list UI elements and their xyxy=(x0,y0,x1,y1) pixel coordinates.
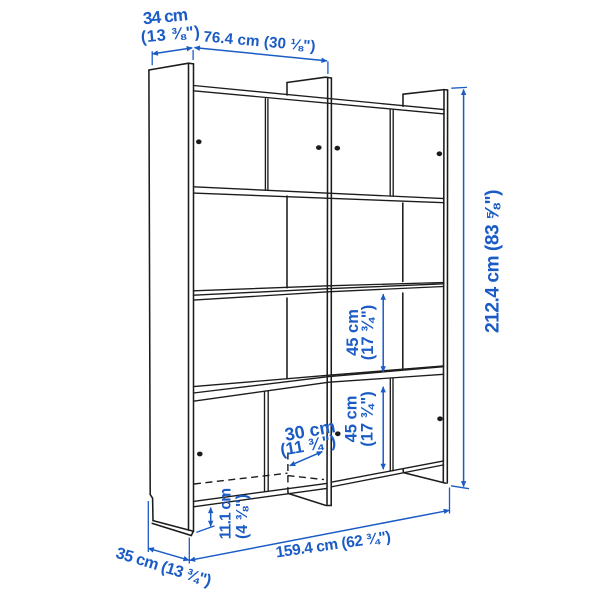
svg-text:(17 ¾"): (17 ¾") xyxy=(358,391,376,447)
svg-text:76.4 cm (30 ⅛"): 76.4 cm (30 ⅛") xyxy=(203,28,317,55)
svg-text:(17 ¾"): (17 ¾") xyxy=(359,305,377,361)
svg-text:35 cm (13 ¾"): 35 cm (13 ¾") xyxy=(114,544,213,590)
svg-text:11.1 cm: 11.1 cm xyxy=(218,489,235,539)
svg-text:(4 ⅜"): (4 ⅜") xyxy=(234,494,251,539)
svg-text:159.4 cm (62 ¾"): 159.4 cm (62 ¾") xyxy=(275,529,392,562)
svg-text:212.4 cm (83 ⅝"): 212.4 cm (83 ⅝") xyxy=(483,190,504,333)
